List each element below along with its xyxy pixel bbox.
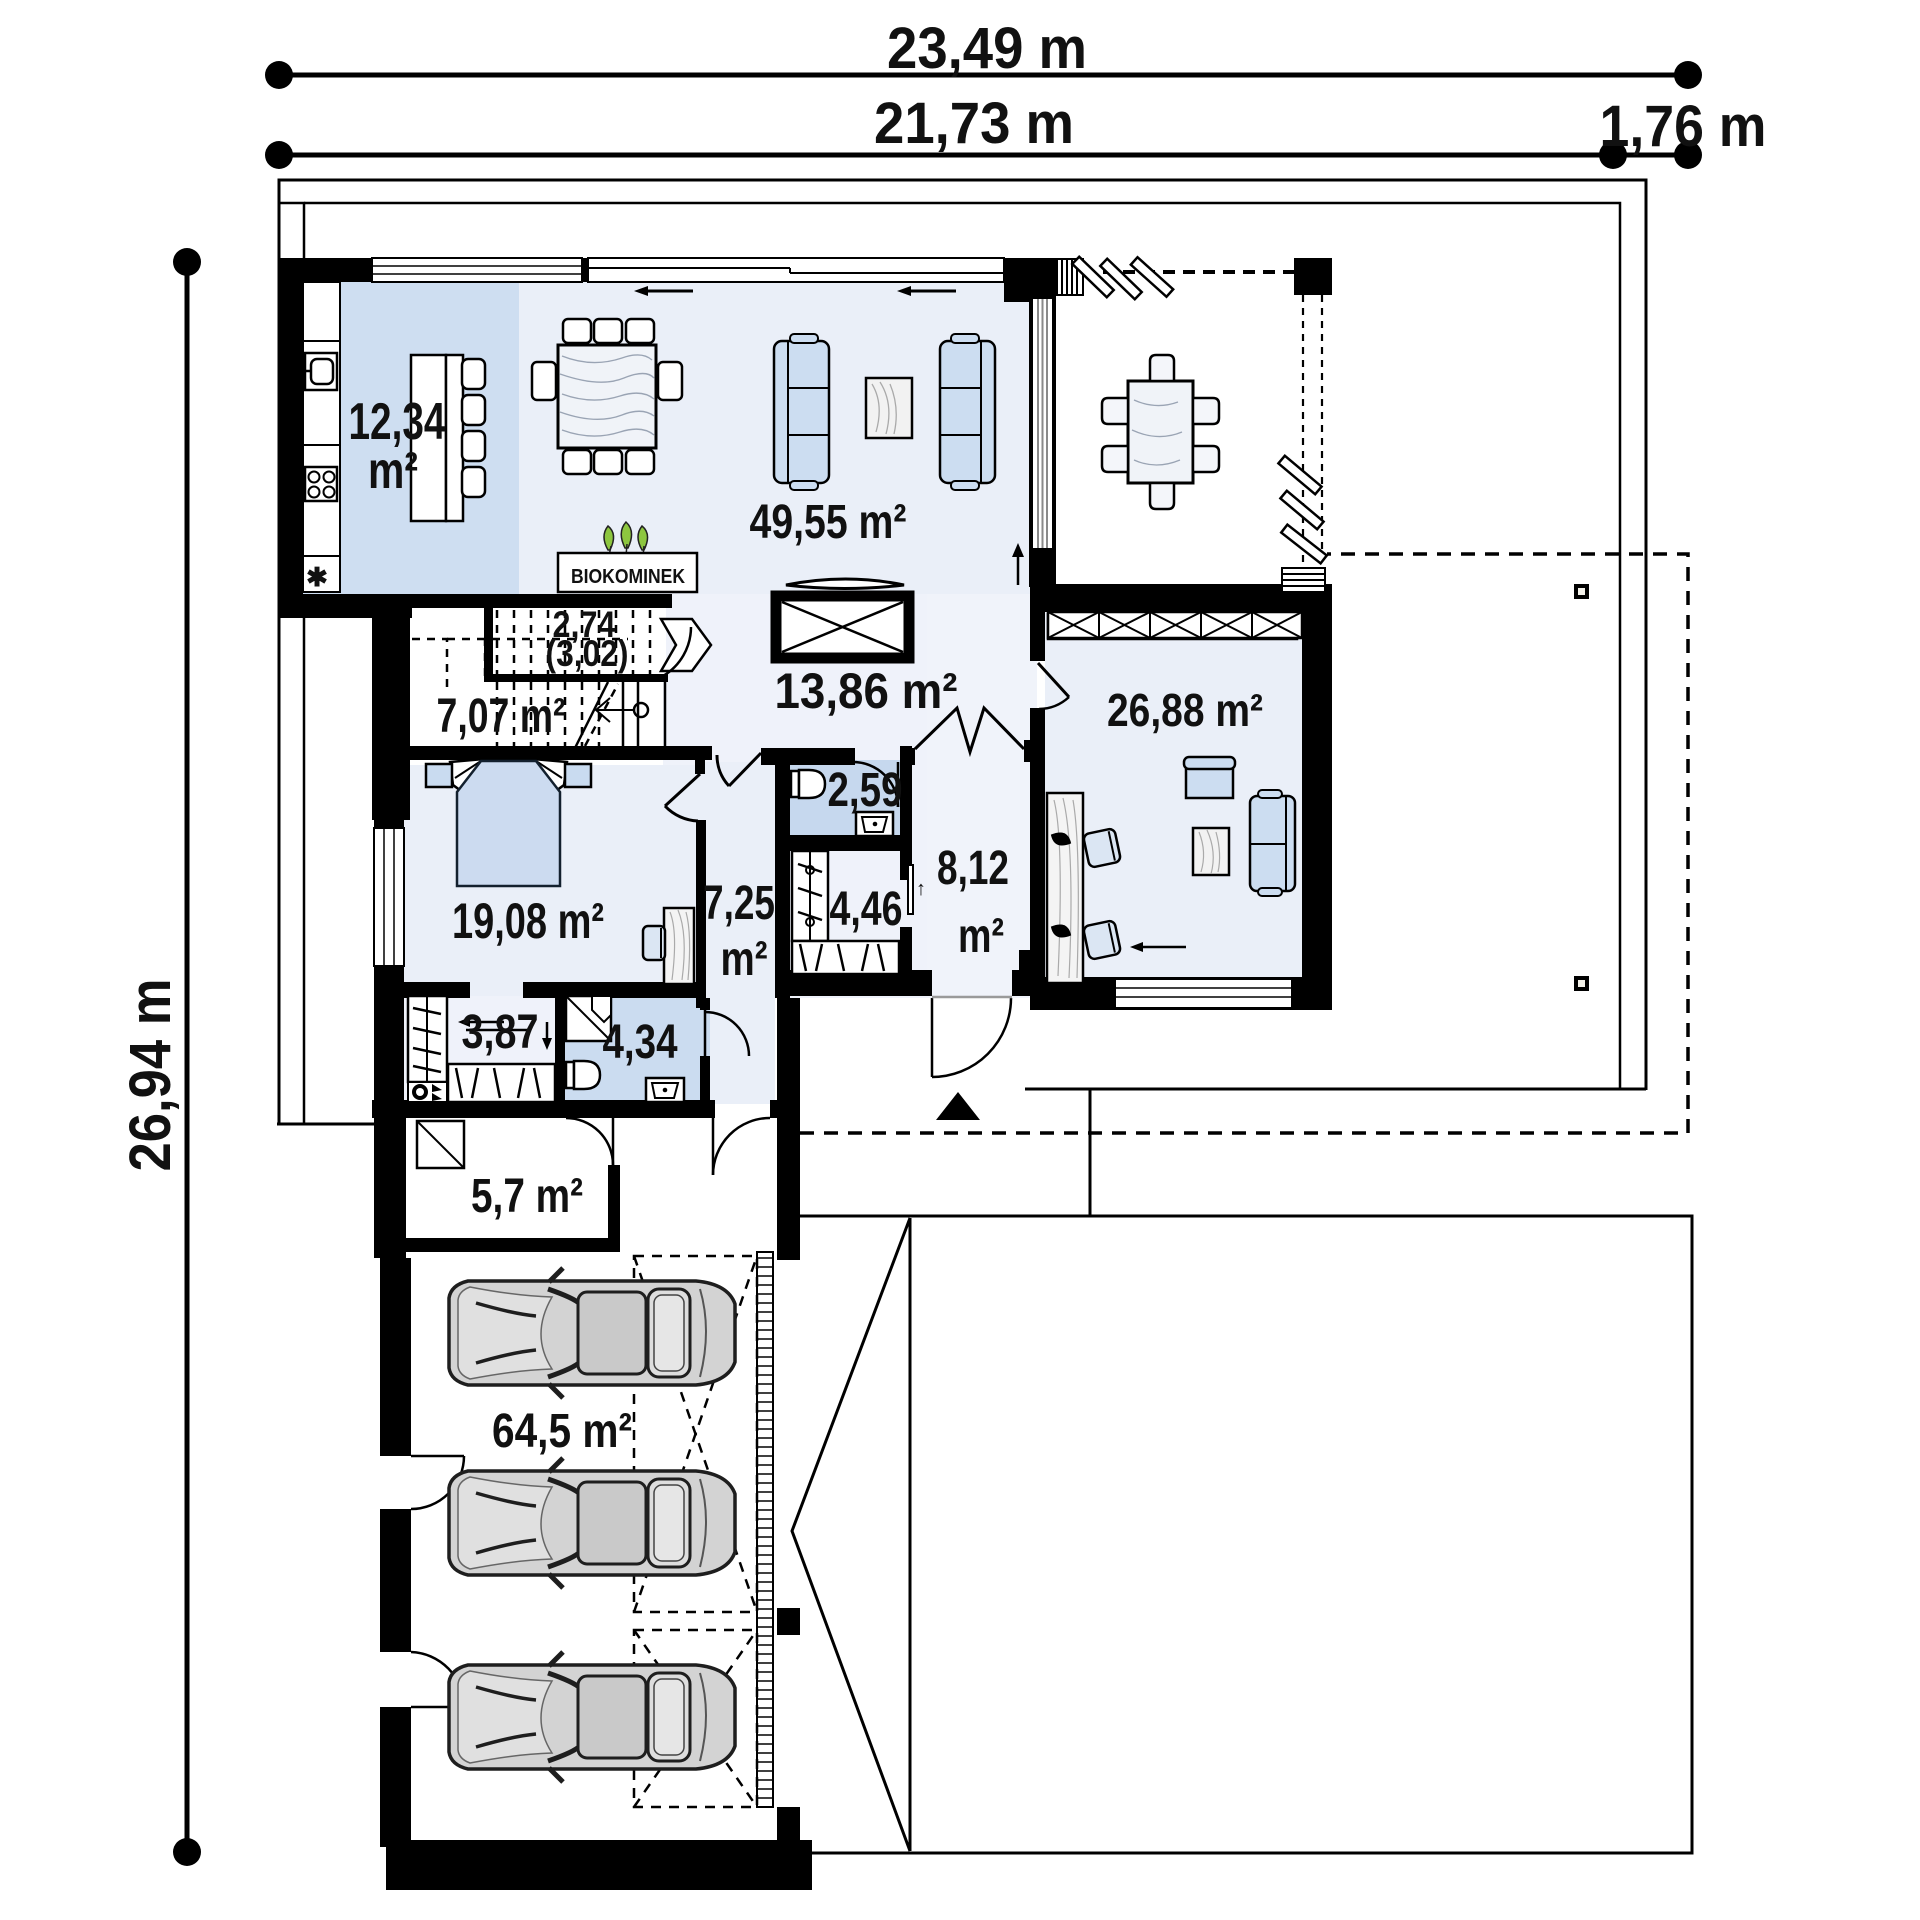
svg-text:19,08 m²: 19,08 m² — [452, 893, 604, 949]
svg-text:26,94 m: 26,94 m — [118, 979, 183, 1172]
svg-text:23,49 m: 23,49 m — [887, 16, 1087, 81]
svg-text:4,46: 4,46 — [830, 883, 903, 936]
svg-text:21,73 m: 21,73 m — [874, 91, 1074, 156]
svg-text:BIOKOMINEK: BIOKOMINEK — [571, 566, 685, 588]
svg-text:64,5 m²: 64,5 m² — [492, 1405, 632, 1458]
svg-text:m²: m² — [721, 933, 768, 986]
svg-text:m²: m² — [368, 442, 418, 500]
svg-text:13,86 m²: 13,86 m² — [775, 663, 958, 719]
svg-text:7,25: 7,25 — [703, 877, 775, 930]
svg-text:1,76 m: 1,76 m — [1600, 94, 1767, 159]
svg-text:7,07 m²: 7,07 m² — [437, 690, 566, 743]
svg-text:(3,02): (3,02) — [546, 633, 629, 674]
svg-text:5,7 m²: 5,7 m² — [471, 1170, 583, 1223]
svg-text:2,59: 2,59 — [828, 764, 903, 817]
svg-text:49,55 m²: 49,55 m² — [750, 496, 907, 549]
svg-text:26,88 m²: 26,88 m² — [1107, 684, 1263, 736]
svg-text:m²: m² — [958, 910, 1004, 963]
svg-text:3,87: 3,87 — [462, 1006, 539, 1059]
svg-text:4,34: 4,34 — [603, 1016, 678, 1069]
svg-text:8,12: 8,12 — [937, 842, 1009, 895]
svg-text:✱: ✱ — [306, 562, 328, 592]
svg-text:↑: ↑ — [916, 878, 926, 900]
